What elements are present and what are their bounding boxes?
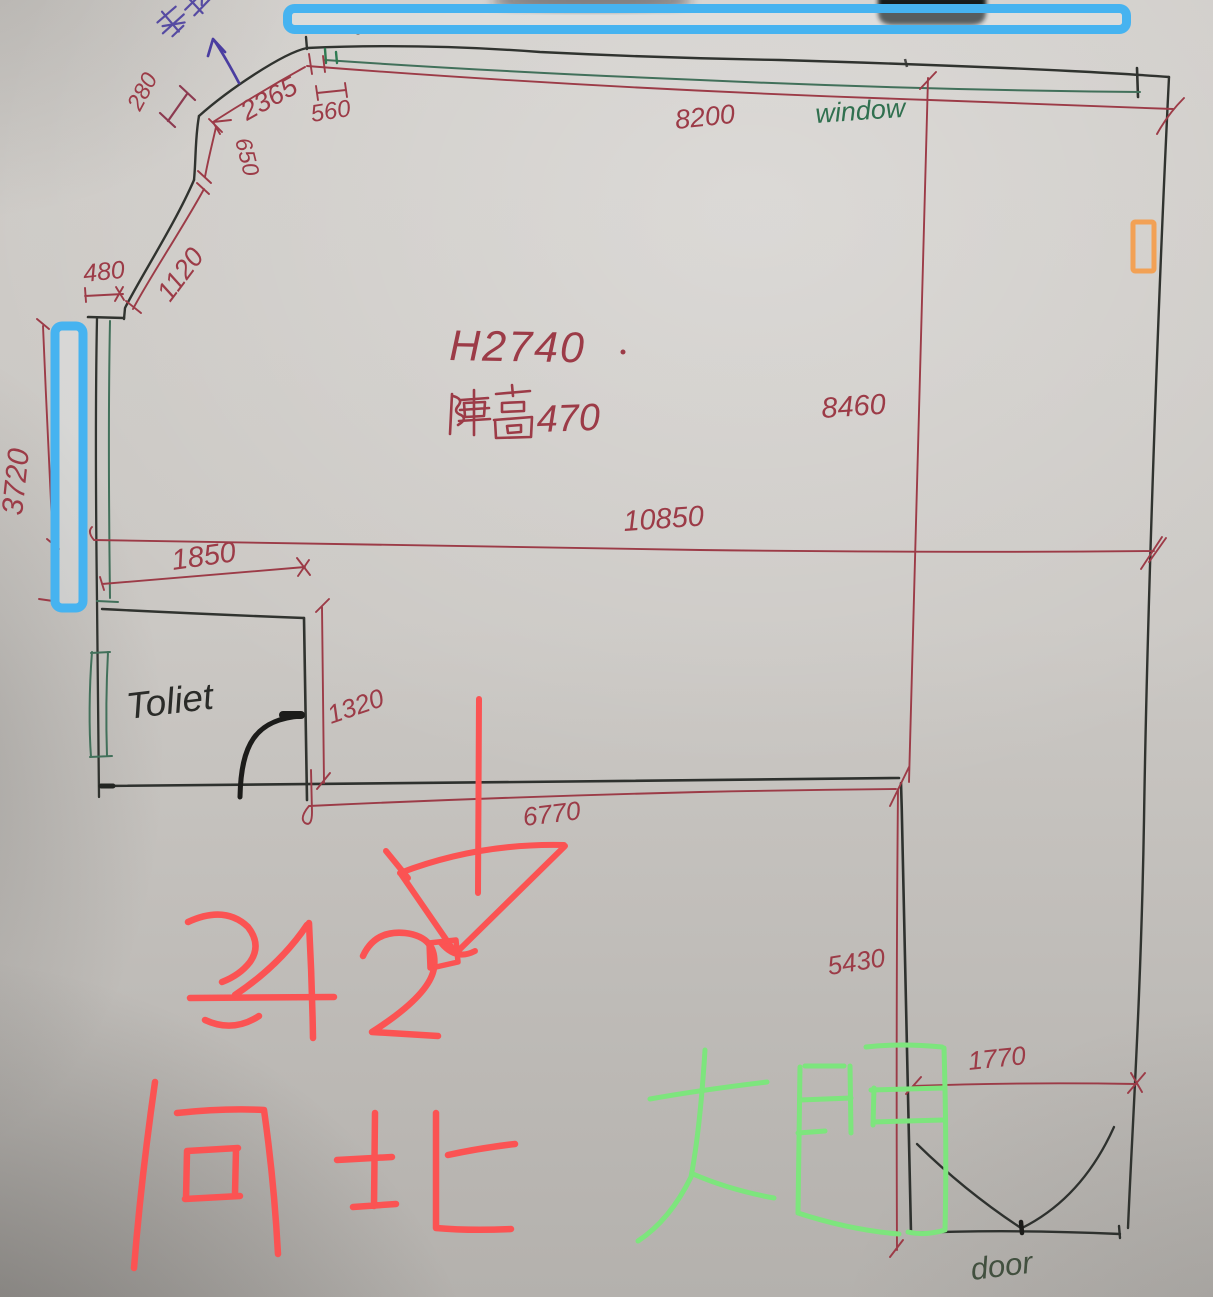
- svg-text:1770: 1770: [966, 1040, 1027, 1076]
- svg-text:Toliet: Toliet: [124, 675, 217, 727]
- svg-text:1320: 1320: [323, 682, 388, 729]
- svg-text:5430: 5430: [825, 942, 887, 981]
- svg-text:3720: 3720: [0, 447, 36, 517]
- svg-text:480: 480: [82, 256, 127, 288]
- svg-text:1120: 1120: [151, 242, 210, 306]
- svg-text:6770: 6770: [521, 795, 583, 832]
- svg-text:560: 560: [309, 95, 353, 128]
- svg-text:650: 650: [230, 135, 265, 179]
- svg-text:10850: 10850: [622, 500, 705, 538]
- svg-text:H2740: H2740: [449, 322, 587, 372]
- svg-text:door: door: [969, 1244, 1037, 1287]
- svg-text:280: 280: [121, 68, 163, 115]
- svg-text:8460: 8460: [820, 389, 887, 425]
- svg-text:2365: 2365: [234, 70, 303, 126]
- svg-text:window: window: [814, 93, 907, 129]
- svg-text:470: 470: [536, 397, 601, 441]
- svg-text:8200: 8200: [673, 99, 736, 135]
